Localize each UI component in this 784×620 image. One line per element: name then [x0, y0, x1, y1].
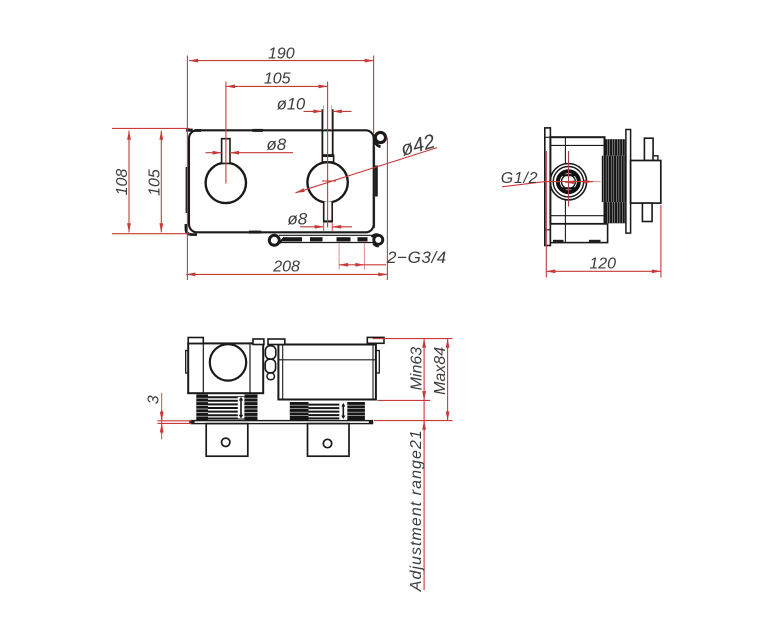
svg-text:190: 190 — [268, 46, 295, 63]
svg-text:Max84: Max84 — [432, 347, 449, 395]
svg-text:Adjustment range21: Adjustment range21 — [408, 429, 425, 592]
svg-text:120: 120 — [589, 255, 616, 272]
svg-text:ø8: ø8 — [287, 210, 307, 229]
svg-text:ø10: ø10 — [277, 96, 306, 114]
svg-text:ø42: ø42 — [398, 131, 437, 161]
svg-text:2−G3/4: 2−G3/4 — [386, 248, 447, 267]
svg-text:105: 105 — [264, 71, 291, 88]
svg-text:108: 108 — [114, 169, 131, 196]
svg-text:G1/2: G1/2 — [501, 170, 539, 187]
svg-text:105: 105 — [147, 169, 164, 196]
svg-text:208: 208 — [272, 259, 300, 276]
svg-text:Min63: Min63 — [409, 347, 426, 391]
svg-text:3: 3 — [146, 395, 163, 404]
svg-text:ø8: ø8 — [266, 135, 286, 154]
